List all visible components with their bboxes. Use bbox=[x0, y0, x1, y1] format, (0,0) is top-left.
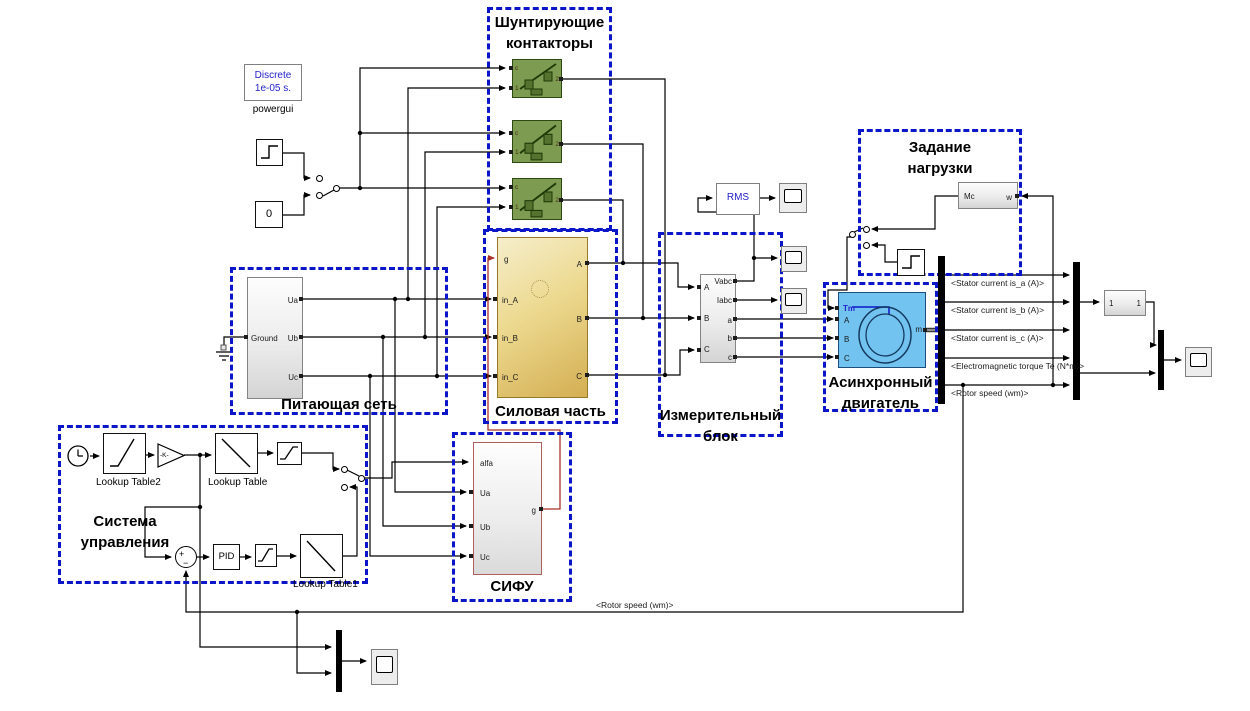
ground-connector bbox=[221, 345, 226, 350]
shunt-title-line1: Шунтирующие bbox=[487, 12, 612, 33]
signal-label-stator-b: <Stator current is_b (A)> bbox=[951, 305, 1044, 315]
power-port-c: C bbox=[576, 372, 582, 381]
sifu-port-alfa: alfa bbox=[480, 459, 493, 468]
sifu-title: СИФУ bbox=[452, 576, 572, 597]
bridge-icon bbox=[531, 280, 549, 298]
signal-label-rotor-speed-feedback: <Rotor speed (wm)> bbox=[596, 600, 673, 610]
signal-label-torque: <Electromagnetic torque Te (N*m)> bbox=[951, 361, 1084, 371]
breaker-port-c: c bbox=[515, 65, 518, 72]
breaker-icon bbox=[513, 179, 560, 218]
pid-block[interactable]: PID bbox=[213, 544, 240, 570]
bus-selector[interactable] bbox=[938, 256, 945, 404]
load-switch-contact-step[interactable] bbox=[863, 242, 870, 249]
power-port-g: g bbox=[504, 255, 508, 264]
sifu-port-ub: Ub bbox=[480, 523, 490, 532]
measurement-block[interactable]: A B C Vabc Iabc a b c bbox=[700, 274, 736, 363]
signal-label-rotor-speed: <Rotor speed (wm)> bbox=[951, 388, 1028, 398]
simulink-canvas: Шунтирующие контакторы Питающая сеть Сил… bbox=[0, 0, 1250, 711]
meas-port-a: a bbox=[728, 316, 732, 325]
scope-screen bbox=[785, 251, 802, 264]
breaker-port-2: 2 bbox=[555, 197, 559, 204]
sifu-port-g: g bbox=[532, 506, 536, 515]
powergui-block[interactable]: Discrete 1e-05 s. bbox=[244, 64, 302, 101]
breaker-port-2: 2 bbox=[555, 141, 559, 148]
control-switch-pivot[interactable] bbox=[358, 475, 365, 482]
constant-zero-block[interactable]: 0 bbox=[255, 201, 283, 228]
lookup-table-block[interactable] bbox=[215, 433, 258, 474]
shunt-title: Шунтирующие контакторы bbox=[487, 12, 612, 54]
powergui-line1: Discrete bbox=[245, 69, 301, 82]
manual-switch1-pivot[interactable] bbox=[333, 185, 340, 192]
breaker-block-3[interactable]: c 1 2 bbox=[512, 178, 562, 220]
meas-title-line2: блок bbox=[658, 426, 783, 447]
shunt-title-line2: контакторы bbox=[487, 33, 612, 54]
lookup-table-label: Lookup Table bbox=[208, 477, 266, 489]
power-port-a: A bbox=[577, 260, 582, 269]
signal-mux[interactable] bbox=[1073, 262, 1080, 400]
rms-scope[interactable] bbox=[779, 183, 807, 213]
breaker-port-c: c bbox=[515, 130, 518, 137]
saturation-icon bbox=[256, 545, 275, 565]
power-section-block[interactable]: g in_A in_B in_C A B C bbox=[497, 237, 588, 398]
scope-screen bbox=[376, 656, 394, 673]
powergui-line2: 1e-05 s. bbox=[245, 82, 301, 95]
inverse-curve-icon bbox=[216, 434, 256, 472]
step-source-block[interactable] bbox=[256, 139, 283, 166]
load-switch-pivot[interactable] bbox=[849, 231, 856, 238]
step-icon bbox=[898, 250, 924, 275]
control-title-line1: Система bbox=[45, 511, 205, 532]
motor-port-b: B bbox=[844, 335, 849, 344]
scope-screen bbox=[784, 189, 802, 204]
powergui-label: powergui bbox=[244, 104, 302, 116]
supply-port-ua: Ua bbox=[288, 296, 298, 305]
gain-block[interactable]: -K- bbox=[157, 443, 185, 468]
unity-out-label: 1 bbox=[1137, 299, 1141, 308]
inverse-curve-icon bbox=[301, 535, 341, 576]
load-title-line2: нагрузки bbox=[858, 158, 1022, 179]
meas-port-c-in: C bbox=[704, 345, 710, 354]
meas-port-b: b bbox=[728, 334, 732, 343]
breaker-port-c: c bbox=[515, 184, 518, 191]
motor-port-tm: Tm bbox=[843, 304, 855, 313]
power-port-in-a: in_A bbox=[502, 296, 518, 305]
load-port-mc: Mc bbox=[964, 192, 975, 201]
meas-port-a-in: A bbox=[704, 283, 709, 292]
meas-title: Измерительный блок bbox=[658, 405, 783, 447]
rms-label: RMS bbox=[727, 192, 749, 203]
motor-port-c: C bbox=[844, 354, 850, 363]
breaker-port-2: 2 bbox=[555, 76, 559, 83]
clock-icon bbox=[66, 444, 90, 468]
constant-zero-value: 0 bbox=[266, 208, 272, 220]
breaker-port-1: 1 bbox=[515, 204, 519, 211]
load-title-line1: Задание bbox=[858, 137, 1022, 158]
lookup-table1-block[interactable] bbox=[300, 534, 343, 578]
meas-port-c: c bbox=[728, 353, 732, 362]
vabc-scope[interactable] bbox=[781, 246, 807, 272]
meas-port-b-in: B bbox=[704, 314, 709, 323]
meas-title-line1: Измерительный bbox=[658, 405, 783, 426]
unity-subsystem-block[interactable]: 1 1 bbox=[1104, 290, 1146, 316]
pid-label: PID bbox=[219, 551, 235, 562]
ramp-curve-icon bbox=[104, 434, 144, 472]
iabc-scope[interactable] bbox=[781, 288, 807, 314]
breaker-icon bbox=[513, 60, 560, 96]
sifu-block[interactable]: alfa Ua Ub Uc g bbox=[473, 442, 542, 575]
scope-mux[interactable] bbox=[1158, 330, 1164, 390]
supply-port-ground: Ground bbox=[251, 334, 278, 343]
motor-port-m: m bbox=[915, 325, 922, 334]
signal-label-stator-a: <Stator current is_a (A)> bbox=[951, 278, 1044, 288]
power-port-in-b: in_B bbox=[502, 334, 518, 343]
meas-port-iabc: Iabc bbox=[717, 296, 732, 305]
signal-label-stator-c: <Stator current is_c (A)> bbox=[951, 333, 1044, 343]
load-step-block[interactable] bbox=[897, 249, 925, 276]
motor-port-a: A bbox=[844, 316, 849, 325]
manual-switch1-contact-step[interactable] bbox=[316, 175, 323, 182]
power-title: Силовая часть bbox=[483, 401, 618, 422]
speed-scope[interactable] bbox=[371, 649, 398, 685]
control-switch-contact-upper[interactable] bbox=[341, 466, 348, 473]
breaker-block-1[interactable]: c 1 2 bbox=[512, 59, 562, 98]
lookup-table1-label: Lookup Table1 bbox=[293, 579, 351, 591]
saturation2-block[interactable] bbox=[255, 544, 277, 567]
gain-value: -K- bbox=[160, 452, 169, 459]
sum-minus-sign: − bbox=[183, 558, 188, 568]
breaker-port-1: 1 bbox=[515, 85, 519, 92]
meas-port-vabc: Vabc bbox=[714, 277, 732, 286]
supply-port-ub: Ub bbox=[288, 334, 298, 343]
motor-title: Асинхронный двигатель bbox=[823, 372, 938, 414]
sifu-port-uc: Uc bbox=[480, 553, 490, 562]
lookup-table2-label: Lookup Table2 bbox=[96, 477, 154, 489]
scope-screen bbox=[1190, 353, 1208, 368]
unity-in-label: 1 bbox=[1109, 299, 1113, 308]
speed-mux[interactable] bbox=[336, 630, 342, 692]
motor-title-line2: двигатель bbox=[823, 393, 938, 414]
manual-switch1-contact-zero[interactable] bbox=[316, 192, 323, 199]
load-port-w: w bbox=[1006, 193, 1012, 202]
motor-title-line1: Асинхронный bbox=[823, 372, 938, 393]
clock-block[interactable] bbox=[66, 444, 90, 468]
step-icon bbox=[257, 140, 282, 165]
breaker-block-2[interactable]: c 1 2 bbox=[512, 120, 562, 163]
scope-screen bbox=[785, 293, 802, 306]
supply-network-block[interactable]: Ground Ua Ub Uc bbox=[247, 277, 303, 399]
load-switch-contact-mc[interactable] bbox=[863, 226, 870, 233]
power-port-in-c: in_C bbox=[502, 373, 518, 382]
breaker-port-1: 1 bbox=[515, 149, 519, 156]
saturation1-block[interactable] bbox=[277, 442, 302, 465]
sifu-port-ua: Ua bbox=[480, 489, 490, 498]
control-switch-contact-lower[interactable] bbox=[341, 484, 348, 491]
saturation-icon bbox=[278, 443, 300, 463]
rms-block[interactable]: RMS bbox=[716, 183, 760, 215]
supply-port-uc: Uc bbox=[288, 373, 298, 382]
load-torque-block[interactable]: Mc w bbox=[958, 182, 1018, 209]
breaker-icon bbox=[513, 121, 560, 161]
load-title: Задание нагрузки bbox=[858, 137, 1022, 179]
power-port-b: B bbox=[577, 315, 582, 324]
lookup-table2-block[interactable] bbox=[103, 433, 146, 474]
async-motor-block[interactable]: Tm A B C m bbox=[838, 292, 926, 368]
signals-scope[interactable] bbox=[1185, 347, 1212, 377]
